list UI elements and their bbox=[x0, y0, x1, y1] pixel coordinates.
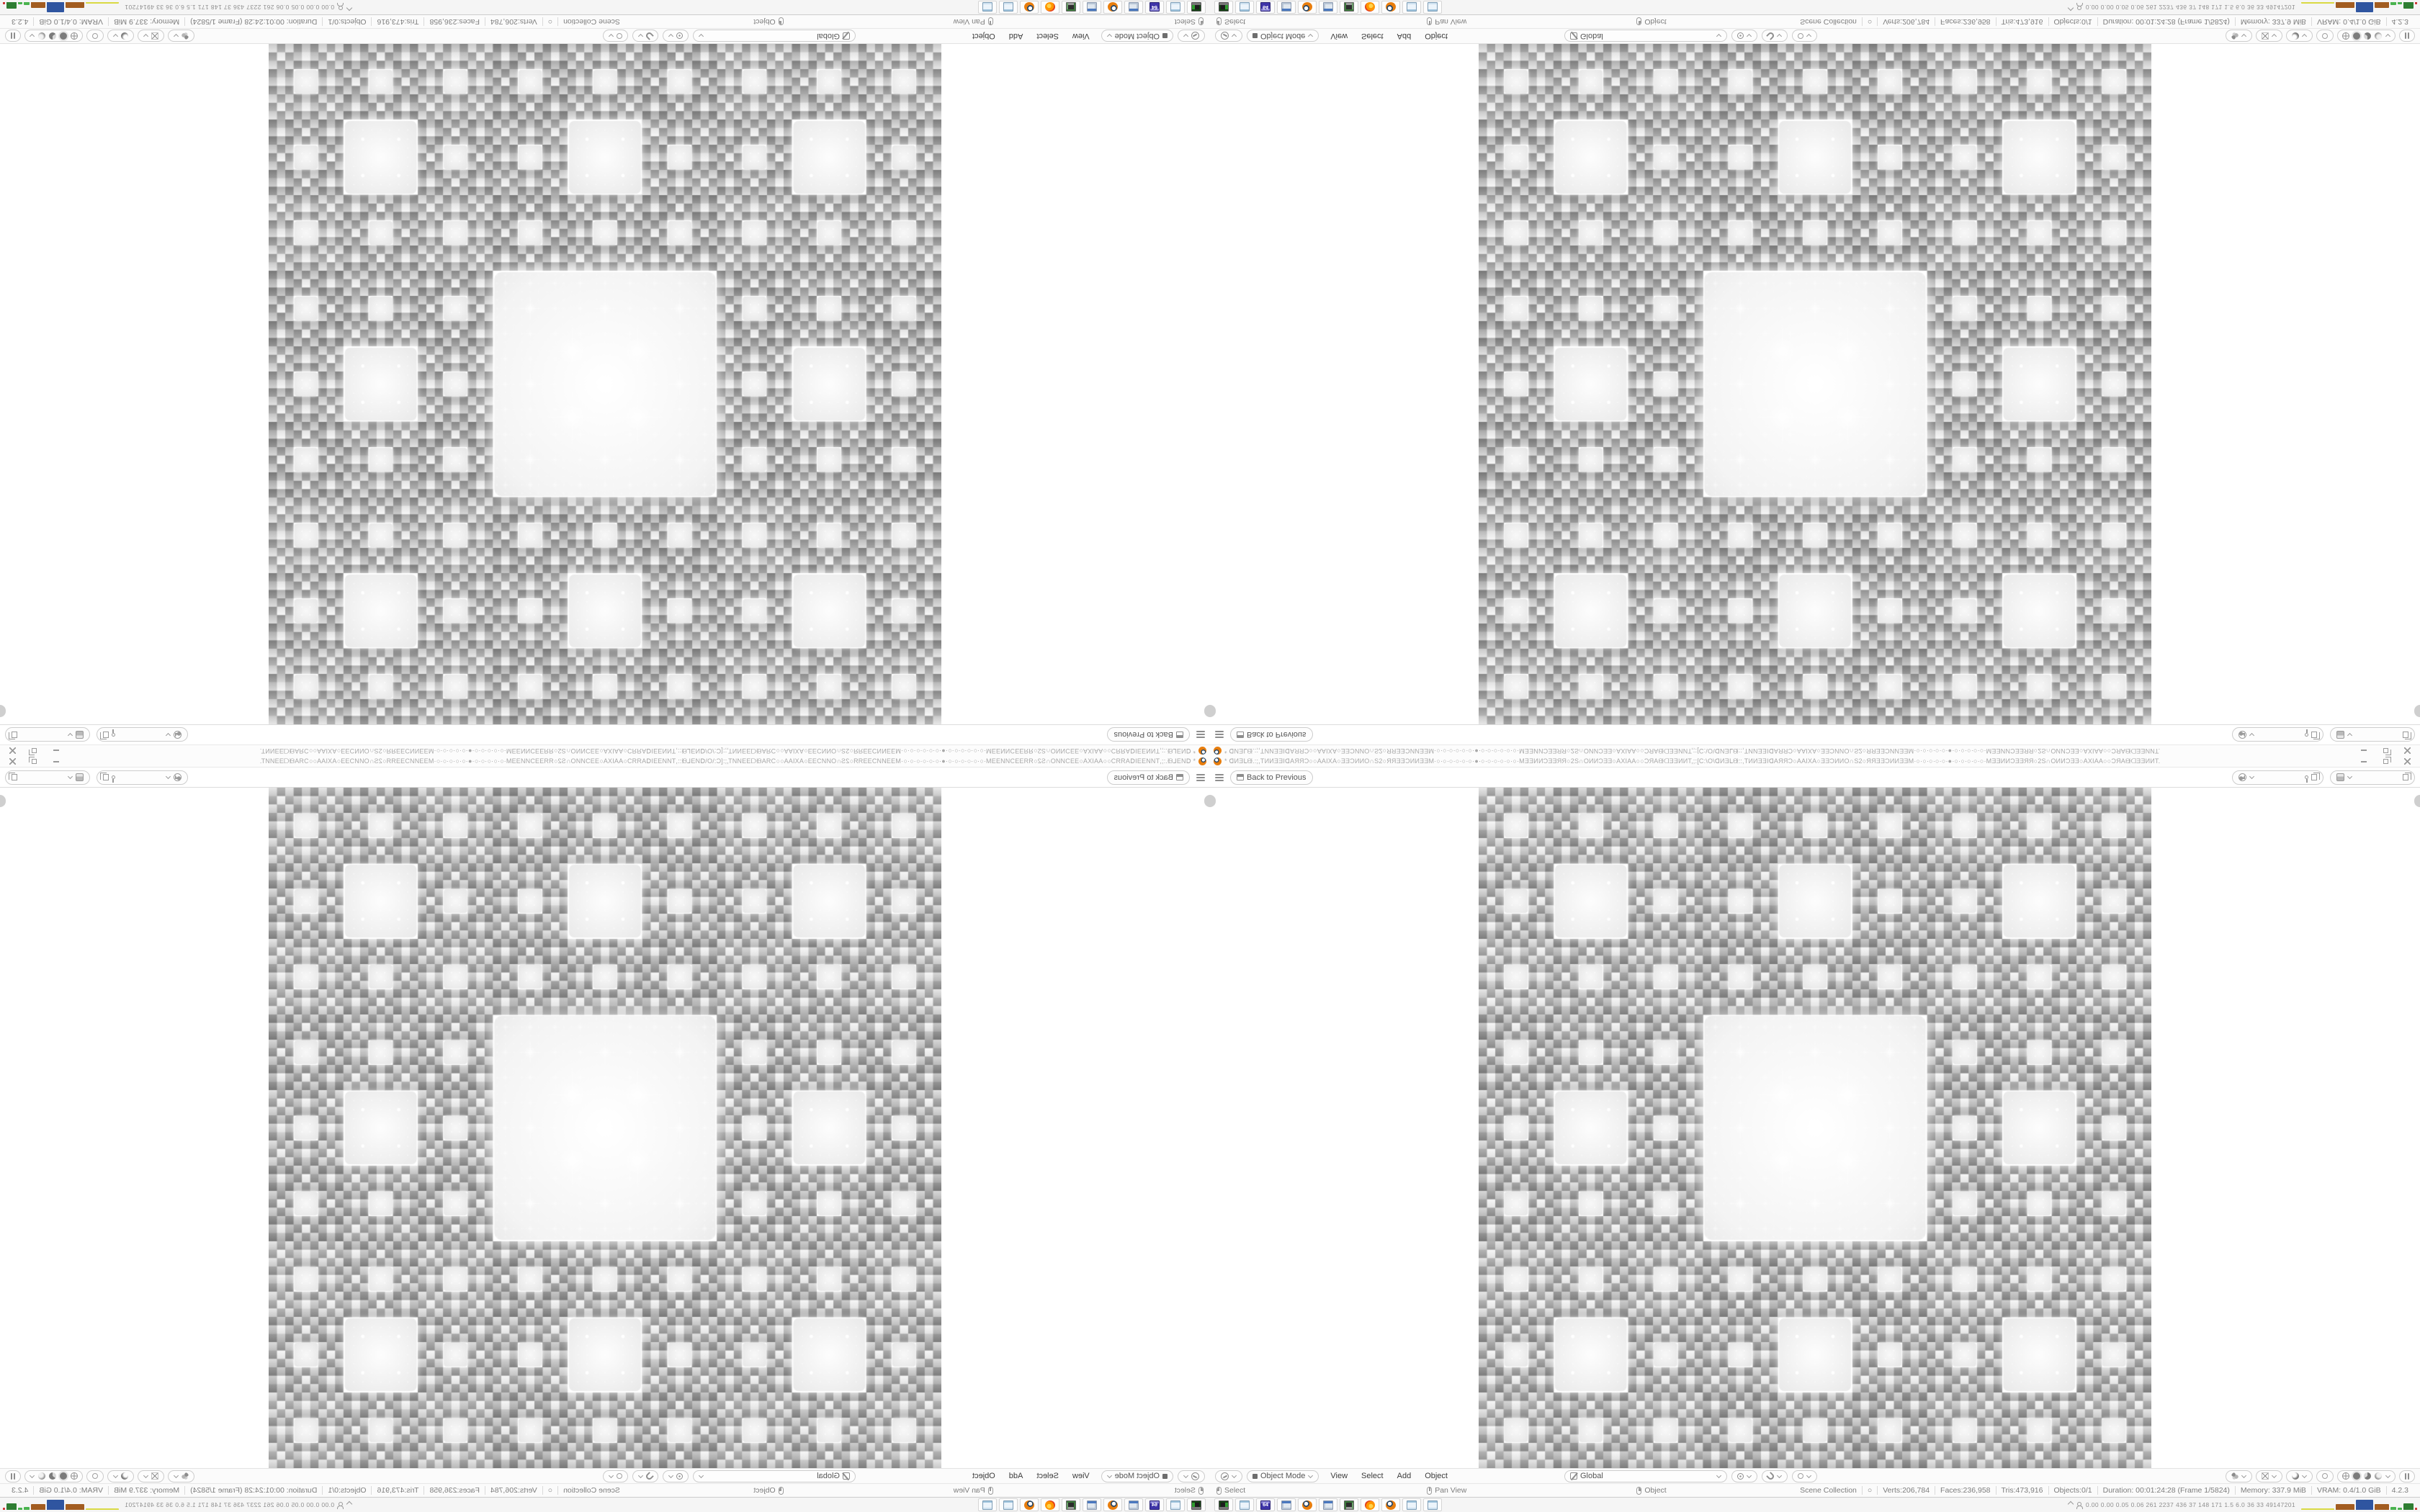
rendered-shading-icon[interactable] bbox=[39, 32, 46, 40]
material-shading-icon[interactable] bbox=[2364, 1472, 2371, 1480]
taskbar-button-calculator-2[interactable] bbox=[1319, 1, 1337, 14]
keymap-hint-pan-view: Pan View bbox=[1427, 17, 1466, 26]
chevron-down-icon[interactable] bbox=[2385, 1472, 2390, 1477]
orientation-label: Global bbox=[1580, 32, 1603, 40]
shading-modes bbox=[25, 1470, 84, 1482]
xray-dropdown[interactable] bbox=[2286, 1470, 2313, 1482]
snap-settings[interactable] bbox=[1762, 1470, 1788, 1482]
proportional-editing[interactable] bbox=[1792, 30, 1817, 42]
solid-shading-icon[interactable] bbox=[2353, 1472, 2360, 1480]
wireframe-shading-icon[interactable] bbox=[2342, 1472, 2349, 1480]
proportional-editing[interactable] bbox=[1792, 1470, 1817, 1482]
menu-icon[interactable] bbox=[1196, 773, 1205, 783]
taskbar-button-blender[interactable] bbox=[1103, 1498, 1122, 1511]
scene-selector[interactable] bbox=[97, 728, 188, 742]
xray-dropdown[interactable] bbox=[108, 1470, 135, 1482]
gizmo-icon bbox=[2231, 32, 2238, 40]
gizmos-dropdown[interactable] bbox=[2226, 30, 2252, 42]
snap-toggle[interactable] bbox=[663, 1470, 689, 1482]
rendered-shading-icon[interactable] bbox=[39, 1472, 46, 1480]
taskbar-button-emulator-64[interactable]: 64 bbox=[1256, 1, 1275, 14]
scene-statistics: Scene Collection○Verts:206,784Faces:236,… bbox=[6, 17, 625, 26]
pin-icon[interactable] bbox=[112, 775, 115, 779]
app-icon bbox=[1281, 3, 1291, 12]
tray-expand-icon[interactable] bbox=[346, 5, 352, 11]
taskbar-button-firefox[interactable] bbox=[1041, 1, 1059, 14]
taskbar-button-notepad-2[interactable] bbox=[1402, 1, 1421, 14]
snap-toggle[interactable] bbox=[1731, 1470, 1757, 1482]
viewport-menu-view[interactable]: View bbox=[1330, 32, 1348, 40]
view-layer-selector[interactable] bbox=[5, 770, 90, 785]
close-button[interactable] bbox=[2399, 747, 2415, 755]
mode-dropdown[interactable]: Object Mode bbox=[1101, 30, 1173, 42]
overlays-dropdown[interactable] bbox=[138, 1470, 165, 1482]
close-button[interactable] bbox=[2399, 757, 2415, 766]
app-icon bbox=[1003, 1500, 1013, 1510]
shading-extra-toggle[interactable] bbox=[2316, 1470, 2334, 1482]
xray-dropdown[interactable] bbox=[2286, 30, 2313, 42]
viewport-render bbox=[269, 788, 941, 1468]
wireframe-shading-icon[interactable] bbox=[71, 1472, 79, 1480]
graph-bar bbox=[18, 1508, 22, 1510]
viewport[interactable] bbox=[1210, 44, 2420, 724]
magnet-icon bbox=[1766, 1472, 1775, 1481]
chevron-down-icon bbox=[2271, 34, 2276, 39]
chevron-down-icon[interactable] bbox=[166, 774, 171, 779]
scene-name-input[interactable] bbox=[2257, 773, 2302, 783]
new-layer-icon[interactable] bbox=[12, 774, 17, 780]
viewport-menu-add[interactable]: Add bbox=[1397, 1472, 1412, 1480]
stat-duration-00-01-24-28-frame-1-5824-: Duration: 00:01:24:28 (Frame 1/5824) bbox=[2097, 1486, 2235, 1495]
transform-orientation-dropdown[interactable]: Global bbox=[1564, 30, 1727, 42]
back-to-previous-button[interactable]: Back to Previous bbox=[1107, 770, 1190, 785]
tray-stats-text: 0.00 0.00 0.05 0.06 261 2237 436 37 148 … bbox=[2086, 4, 2295, 11]
pin-icon[interactable] bbox=[2305, 733, 2308, 737]
graph-bar bbox=[2375, 2, 2389, 8]
viewport-menu-select[interactable]: Select bbox=[1361, 1472, 1384, 1480]
restore-button[interactable] bbox=[27, 747, 42, 755]
taskbar-button-calculator-2[interactable] bbox=[1083, 1, 1101, 14]
chevron-down-icon[interactable] bbox=[2347, 774, 2352, 779]
stat-faces-236-958: Faces:236,958 bbox=[1935, 1486, 1995, 1495]
taskbar-button-console[interactable] bbox=[1214, 1498, 1233, 1511]
taskbar-button-blender[interactable] bbox=[1298, 1498, 1317, 1511]
keymap-hints: Select Pan View Object bbox=[1216, 1486, 1667, 1495]
minimize-button[interactable] bbox=[48, 757, 64, 766]
overlays-dropdown[interactable] bbox=[2256, 1470, 2282, 1482]
mode-dropdown[interactable]: Object Mode bbox=[1247, 30, 1319, 42]
taskbar-button-calculator[interactable] bbox=[1124, 1, 1143, 14]
minimize-button[interactable] bbox=[2356, 757, 2372, 766]
tray-monitor-icon[interactable] bbox=[2076, 3, 2081, 10]
view-layer-icon bbox=[76, 773, 84, 781]
sidebar-collapse-tab[interactable] bbox=[0, 795, 6, 807]
chevron-down-icon[interactable] bbox=[2347, 733, 2352, 738]
viewport-menu-select[interactable]: Select bbox=[1036, 32, 1059, 40]
stat-memory-337-9-mib: Memory: 337.9 MiB bbox=[109, 17, 185, 26]
app-icon bbox=[1386, 1500, 1396, 1510]
viewport-menu-add[interactable]: Add bbox=[1397, 32, 1412, 40]
snap-settings[interactable] bbox=[1762, 30, 1788, 42]
taskbar-button-notepad-3[interactable] bbox=[1423, 1, 1442, 14]
sidebar-collapse-tab[interactable] bbox=[2414, 705, 2420, 717]
scene-selector[interactable] bbox=[2232, 770, 2323, 785]
shading-extra-toggle[interactable] bbox=[87, 1470, 104, 1482]
editor-type-dropdown[interactable] bbox=[1178, 30, 1205, 42]
snap-toggle[interactable] bbox=[663, 30, 689, 42]
graph-bar bbox=[24, 1507, 30, 1510]
tray-stats-text: 0.00 0.00 0.05 0.06 261 2237 436 37 148 … bbox=[125, 4, 334, 11]
snap-settings[interactable] bbox=[632, 1470, 658, 1482]
taskbar-button-firefox[interactable] bbox=[1361, 1498, 1379, 1511]
restore-button[interactable] bbox=[2378, 757, 2393, 766]
new-scene-icon[interactable] bbox=[103, 774, 109, 780]
new-layer-icon[interactable] bbox=[2403, 774, 2408, 780]
proportional-editing-icon bbox=[617, 33, 622, 39]
viewport[interactable] bbox=[0, 788, 1210, 1468]
snap-target-icon bbox=[676, 33, 683, 40]
window-titlebar[interactable]: * ᗡИƎᒪᙠ.:;,TИИƎƎIᗡAЯЯƆ○○AAIXA○ƎƎƆИИO∩S2○… bbox=[0, 756, 1210, 768]
chevron-down-icon[interactable] bbox=[166, 733, 171, 738]
orientation-icon bbox=[1570, 1472, 1577, 1480]
sidebar-collapse-tab[interactable] bbox=[0, 705, 6, 717]
viewport-menu-object[interactable]: Object bbox=[972, 1472, 995, 1480]
taskbar-button-notepad-2[interactable] bbox=[999, 1, 1018, 14]
chevron-down-icon[interactable] bbox=[30, 34, 35, 39]
gizmos-dropdown[interactable] bbox=[169, 1470, 195, 1482]
app-icon bbox=[1281, 1500, 1291, 1510]
wireframe-shading-icon[interactable] bbox=[2342, 32, 2349, 40]
keymap-hint-pan-view: Pan View bbox=[1427, 1486, 1466, 1495]
back-to-previous-button[interactable]: Back to Previous bbox=[1230, 728, 1313, 742]
view-layer-name-input[interactable] bbox=[20, 773, 65, 783]
mode-dropdown[interactable]: Object Mode bbox=[1247, 1470, 1319, 1482]
taskbar-button-calculator[interactable] bbox=[1124, 1498, 1143, 1511]
new-scene-icon[interactable] bbox=[103, 732, 109, 738]
editor-type-dropdown[interactable] bbox=[1215, 1470, 1242, 1482]
taskbar-button-display[interactable] bbox=[1340, 1, 1358, 14]
taskbar-button-notepad-3[interactable] bbox=[978, 1, 997, 14]
chevron-down-icon[interactable] bbox=[2249, 733, 2254, 738]
close-button[interactable] bbox=[5, 747, 21, 755]
window-titlebar[interactable]: * ᗡИƎᒪᙠ.:;,TИИƎƎIᗡAЯЯƆ○○AAIXA○ƎƎƆИИO∩S2○… bbox=[1210, 756, 2420, 768]
new-scene-icon[interactable] bbox=[2311, 732, 2317, 738]
scene-name-input[interactable] bbox=[118, 730, 163, 740]
stat-objects-0-1: Objects:0/1 bbox=[323, 1486, 372, 1495]
back-to-previous-label: Back to Previous bbox=[1247, 773, 1307, 782]
shading-extra-toggle[interactable] bbox=[87, 30, 104, 42]
viewport-menu-object[interactable]: Object bbox=[1425, 32, 1448, 40]
taskbar-button-blender[interactable] bbox=[1103, 1, 1122, 14]
mouse-icon bbox=[1216, 1487, 1222, 1495]
editor-type-dropdown[interactable] bbox=[1178, 1470, 1205, 1482]
tray-monitor-icon[interactable] bbox=[2076, 1502, 2081, 1509]
rendered-shading-icon[interactable] bbox=[2375, 1472, 2382, 1480]
back-to-previous-label: Back to Previous bbox=[1113, 731, 1173, 739]
chevron-down-icon bbox=[1107, 1472, 1112, 1477]
pause-button[interactable] bbox=[5, 30, 22, 42]
chevron-down-icon bbox=[2241, 34, 2246, 39]
viewport[interactable] bbox=[0, 44, 1210, 724]
restore-icon bbox=[2383, 759, 2388, 764]
scene-selector[interactable] bbox=[97, 770, 188, 785]
system-tray: 0.00 0.00 0.05 0.06 261 2237 436 37 148 … bbox=[2069, 1499, 2417, 1511]
menu-icon[interactable] bbox=[1215, 773, 1224, 783]
taskbar-button-console[interactable] bbox=[1187, 1498, 1206, 1511]
new-scene-icon[interactable] bbox=[2311, 774, 2317, 780]
viewport-menus: ViewSelectAddObject bbox=[1330, 1472, 1448, 1480]
taskbar-button-firefox[interactable] bbox=[1361, 1, 1379, 14]
window-controls bbox=[4, 757, 64, 766]
stat-scene-collection: Scene Collection bbox=[1795, 1486, 1862, 1495]
chevron-down-icon[interactable] bbox=[30, 1472, 35, 1477]
editor-type-icon bbox=[1221, 32, 1229, 40]
tray-expand-icon[interactable] bbox=[2068, 1501, 2074, 1507]
viewport-header: Object Mode ViewSelectAddObject Global bbox=[0, 29, 1210, 44]
pause-button[interactable] bbox=[2399, 30, 2416, 42]
magnet-icon bbox=[645, 32, 654, 41]
object-mode-icon bbox=[1162, 1474, 1168, 1479]
app-icon bbox=[1386, 3, 1396, 12]
chevron-down-icon[interactable] bbox=[2249, 774, 2254, 779]
viewport-menu-object[interactable]: Object bbox=[1425, 1472, 1448, 1480]
new-layer-icon[interactable] bbox=[12, 732, 17, 738]
taskbar-button-notepad-3[interactable] bbox=[978, 1498, 997, 1511]
window-titlebar[interactable]: * ᗡИƎᒪᙠ.:;,TИИƎƎIᗡAЯЯƆ○○AAIXA○ƎƎƆИИO∩S2○… bbox=[1210, 744, 2420, 756]
taskbar-button-console[interactable] bbox=[1214, 1, 1233, 14]
minimize-button[interactable] bbox=[48, 747, 64, 755]
viewport-header-right bbox=[2226, 1470, 2416, 1482]
desktop-composite: * ᗡИƎᒪᙠ.:;,TИИƎƎIᗡAЯЯƆ○○AAIXA○ƎƎƆИИO∩S2○… bbox=[0, 0, 2420, 1512]
viewport-menu-add[interactable]: Add bbox=[1009, 32, 1023, 40]
taskbar-button-blender-2[interactable] bbox=[1020, 1498, 1039, 1511]
new-layer-icon[interactable] bbox=[2403, 732, 2408, 738]
viewport-menu-add[interactable]: Add bbox=[1009, 1472, 1023, 1480]
status-bar: Select Pan View Object Scene Collection○… bbox=[0, 15, 1210, 29]
taskbar-button-emulator-64[interactable]: 64 bbox=[1145, 1, 1164, 14]
view-layer-name-input[interactable] bbox=[2355, 730, 2400, 740]
wireframe-shading-icon[interactable] bbox=[71, 32, 79, 40]
viewport-menus: ViewSelectAddObject bbox=[972, 32, 1090, 40]
view-layer-selector[interactable] bbox=[2330, 728, 2415, 742]
solid-shading-icon[interactable] bbox=[60, 32, 68, 40]
graph-bar bbox=[2356, 2, 2373, 12]
proportional-editing[interactable] bbox=[603, 30, 628, 42]
mode-label: Object Mode bbox=[1115, 1472, 1160, 1480]
chevron-down-icon bbox=[143, 1472, 148, 1477]
chevron-down-icon bbox=[1777, 1472, 1782, 1477]
view-layer-selector[interactable] bbox=[5, 728, 90, 742]
taskbar-button-display[interactable] bbox=[1062, 1498, 1080, 1511]
view-layer-selector[interactable] bbox=[2330, 770, 2415, 785]
keymap-hint-object: Object bbox=[753, 17, 783, 26]
taskbar-button-notepad[interactable] bbox=[1166, 1, 1185, 14]
snap-toggle[interactable] bbox=[1731, 30, 1757, 42]
keymap-hint-select: Select bbox=[1216, 17, 1245, 26]
taskbar-button-console[interactable] bbox=[1187, 1, 1206, 14]
object-mode-icon bbox=[1252, 1474, 1258, 1479]
app-icon bbox=[1407, 3, 1417, 12]
overlays-dropdown[interactable] bbox=[138, 30, 165, 42]
gizmos-dropdown[interactable] bbox=[2226, 1470, 2252, 1482]
window-titlebar[interactable]: * ᗡИƎᒪᙠ.:;,TИИƎƎIᗡAЯЯƆ○○AAIXA○ƎƎƆИИO∩S2○… bbox=[0, 744, 1210, 756]
app-icon bbox=[1066, 1500, 1076, 1510]
chevron-down-icon bbox=[1806, 1472, 1811, 1477]
mode-dropdown[interactable]: Object Mode bbox=[1101, 1470, 1173, 1482]
material-shading-icon[interactable] bbox=[50, 1472, 57, 1480]
back-to-previous-button[interactable]: Back to Previous bbox=[1107, 728, 1190, 742]
transform-orientation-dropdown[interactable]: Global bbox=[693, 30, 856, 42]
scene-statistics: Scene Collection○Verts:206,784Faces:236,… bbox=[1795, 17, 2414, 26]
scene-name-input[interactable] bbox=[2257, 730, 2302, 740]
viewport-menus: ViewSelectAddObject bbox=[972, 1472, 1090, 1480]
viewport[interactable] bbox=[1210, 788, 2420, 1468]
menu-icon[interactable] bbox=[1215, 730, 1224, 740]
toolbar-collapse-tab[interactable] bbox=[1204, 795, 1210, 807]
editor-type-dropdown[interactable] bbox=[1215, 30, 1242, 42]
scene-icon bbox=[174, 773, 181, 781]
taskbar-button-display[interactable] bbox=[1340, 1498, 1358, 1511]
chevron-down-icon bbox=[668, 34, 673, 39]
viewport-menu-view[interactable]: View bbox=[1072, 1472, 1090, 1480]
os-taskbar: 64 bbox=[1210, 0, 2420, 15]
viewport-menu-object[interactable]: Object bbox=[972, 32, 995, 40]
chevron-down-icon[interactable] bbox=[2385, 34, 2390, 39]
tray-monitor-icon[interactable] bbox=[339, 1502, 344, 1509]
window-title: * ᗡИƎᒪᙠ.:;,TИИƎƎIᗡAЯЯƆ○○AAIXA○ƎƎƆИИO∩S2○… bbox=[67, 747, 1196, 755]
taskbar-button-notepad-2[interactable] bbox=[1402, 1498, 1421, 1511]
chevron-down-icon bbox=[1107, 34, 1112, 39]
taskbar-button-display[interactable] bbox=[1062, 1, 1080, 14]
chevron-down-icon bbox=[1183, 34, 1188, 39]
shading-extra-toggle[interactable] bbox=[2316, 30, 2334, 42]
taskbar-button-blender[interactable] bbox=[1298, 1, 1317, 14]
restore-button[interactable] bbox=[2378, 747, 2393, 755]
taskbar-button-blender-2[interactable] bbox=[1381, 1, 1400, 14]
os-taskbar: 64 bbox=[1210, 1497, 2420, 1512]
chevron-down-icon[interactable] bbox=[68, 733, 73, 738]
toolbar-collapse-tab[interactable] bbox=[1204, 705, 1210, 717]
stat--: ○ bbox=[543, 17, 558, 26]
app-icon bbox=[1344, 1500, 1354, 1510]
app-icon bbox=[1407, 1500, 1417, 1510]
taskbar-button-calculator-2[interactable] bbox=[1319, 1498, 1337, 1511]
tray-expand-icon[interactable] bbox=[2068, 5, 2074, 11]
viewport-menu-select[interactable]: Select bbox=[1361, 32, 1384, 40]
transform-orientation-dropdown[interactable]: Global bbox=[693, 1470, 856, 1482]
object-mode-icon bbox=[1252, 34, 1258, 39]
circle-icon bbox=[2322, 33, 2328, 39]
stat-tris-473-916: Tris:473,916 bbox=[1996, 1486, 2048, 1495]
pin-icon[interactable] bbox=[112, 733, 115, 737]
app-icon bbox=[1045, 1500, 1055, 1510]
minimize-button[interactable] bbox=[2356, 747, 2372, 755]
pin-icon[interactable] bbox=[2305, 775, 2308, 779]
taskbar-button-blender-2[interactable] bbox=[1381, 1498, 1400, 1511]
taskbar-button-firefox[interactable] bbox=[1041, 1498, 1059, 1511]
app-icon bbox=[1365, 1500, 1375, 1510]
chevron-down-icon bbox=[174, 34, 179, 39]
xray-dropdown[interactable] bbox=[108, 30, 135, 42]
tray-usage-graph bbox=[2301, 1, 2417, 13]
tray-expand-icon[interactable] bbox=[346, 1501, 352, 1507]
transform-orientation-dropdown[interactable]: Global bbox=[1564, 1470, 1727, 1482]
taskbar-button-notepad[interactable] bbox=[1235, 1, 1254, 14]
taskbar-button-calculator-2[interactable] bbox=[1083, 1498, 1101, 1511]
proportional-editing[interactable] bbox=[603, 1470, 628, 1482]
app-icon bbox=[1365, 3, 1375, 12]
restore-button[interactable] bbox=[27, 757, 42, 766]
keymap-hint-pan-view: Pan View bbox=[954, 1486, 993, 1495]
view-layer-name-input[interactable] bbox=[2355, 773, 2400, 783]
taskbar-button-emulator-64[interactable]: 64 bbox=[1256, 1498, 1275, 1511]
material-shading-icon[interactable] bbox=[2364, 32, 2371, 40]
stat-4-2-3: 4.2.3 bbox=[6, 17, 34, 26]
graph-bar bbox=[2398, 1508, 2402, 1510]
scene-name-input[interactable] bbox=[118, 773, 163, 783]
viewport-menu-view[interactable]: View bbox=[1330, 1472, 1348, 1480]
graph-bar bbox=[2336, 1504, 2354, 1510]
taskbar-button-emulator-64[interactable]: 64 bbox=[1145, 1498, 1164, 1511]
view-layer-icon bbox=[76, 731, 84, 739]
taskbar-button-blender-2[interactable] bbox=[1020, 1, 1039, 14]
graph-bar bbox=[2398, 2, 2402, 4]
snap-settings[interactable] bbox=[632, 30, 658, 42]
taskbar-button-notepad[interactable] bbox=[1166, 1498, 1185, 1511]
close-button[interactable] bbox=[5, 757, 21, 766]
tray-usage-graph bbox=[3, 1, 119, 13]
snap-target-icon bbox=[676, 1473, 683, 1480]
taskbar-button-notepad[interactable] bbox=[1235, 1498, 1254, 1511]
material-shading-icon[interactable] bbox=[50, 32, 57, 40]
tray-stats-text: 0.00 0.00 0.05 0.06 261 2237 436 37 148 … bbox=[2086, 1501, 2295, 1508]
stat-objects-0-1: Objects:0/1 bbox=[2048, 17, 2097, 26]
overlays-dropdown[interactable] bbox=[2256, 30, 2282, 42]
taskbar-button-notepad-3[interactable] bbox=[1423, 1498, 1442, 1511]
window-icon bbox=[1237, 732, 1244, 738]
app-icon bbox=[1024, 1500, 1034, 1510]
viewport-menu-view[interactable]: View bbox=[1072, 32, 1090, 40]
toolbar-collapse-tab[interactable] bbox=[1210, 795, 1216, 807]
toolbar-collapse-tab[interactable] bbox=[1210, 705, 1216, 717]
view-layer-name-input[interactable] bbox=[20, 730, 65, 740]
rendered-shading-icon[interactable] bbox=[2375, 32, 2382, 40]
viewport-menu-select[interactable]: Select bbox=[1036, 1472, 1059, 1480]
taskbar-button-calculator[interactable] bbox=[1277, 1498, 1296, 1511]
solid-shading-icon[interactable] bbox=[60, 1472, 68, 1480]
menu-icon[interactable] bbox=[1196, 730, 1205, 740]
proportional-editing-icon bbox=[617, 1473, 622, 1479]
graph-bar bbox=[86, 2, 119, 4]
taskbar-button-calculator[interactable] bbox=[1277, 1, 1296, 14]
shading-modes bbox=[2337, 30, 2396, 42]
sidebar-collapse-tab[interactable] bbox=[2414, 795, 2420, 807]
pause-button[interactable] bbox=[2399, 1470, 2416, 1482]
scene-selector[interactable] bbox=[2232, 728, 2323, 742]
tray-usage-graph bbox=[2301, 1499, 2417, 1511]
pause-button[interactable] bbox=[5, 1470, 22, 1482]
tray-monitor-icon[interactable] bbox=[339, 3, 344, 10]
graph-bar bbox=[66, 2, 84, 8]
stat-memory-337-9-mib: Memory: 337.9 MiB bbox=[2235, 1486, 2311, 1495]
back-to-previous-button[interactable]: Back to Previous bbox=[1230, 770, 1313, 785]
chevron-down-icon[interactable] bbox=[68, 774, 73, 779]
viewport-header-right bbox=[5, 30, 195, 42]
gizmos-dropdown[interactable] bbox=[169, 30, 195, 42]
taskbar-button-notepad-2[interactable] bbox=[999, 1498, 1018, 1511]
chevron-down-icon bbox=[2271, 1472, 2276, 1477]
solid-shading-icon[interactable] bbox=[2353, 32, 2360, 40]
